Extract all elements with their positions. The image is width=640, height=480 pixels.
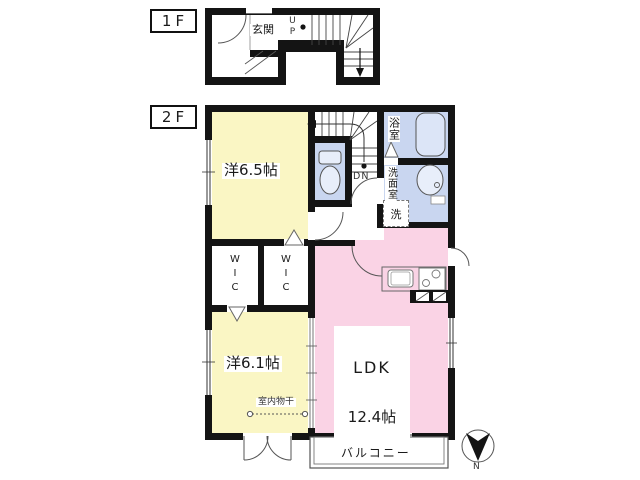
wall-segment xyxy=(345,136,352,207)
wall-segment xyxy=(212,305,308,312)
wall-segment xyxy=(258,246,264,305)
wall-segment xyxy=(398,158,448,165)
north-label: N xyxy=(473,463,480,472)
ldk-name: LDK xyxy=(336,360,408,377)
entrance-label: 玄関 xyxy=(250,24,276,36)
washroom-label: 洗面室 xyxy=(385,166,396,201)
sink-icon xyxy=(417,165,443,195)
floor1-tag: 1F xyxy=(150,9,197,33)
wic-right-label: WIC xyxy=(280,254,291,296)
floor1-tag-label: 1F xyxy=(162,12,188,30)
stairs-end-dot xyxy=(361,163,366,168)
drying-hook-icon xyxy=(302,411,307,416)
balcony-label: バルコニー xyxy=(341,447,411,460)
toilet-tank-icon xyxy=(319,151,341,164)
toilet-bowl-icon xyxy=(320,166,340,194)
wall-segment xyxy=(278,40,286,85)
bath-label: 浴室 xyxy=(388,116,400,142)
wall-segment xyxy=(315,200,345,207)
ldk-door-opening xyxy=(355,240,384,246)
indoor-drying-label: 室内物干 xyxy=(256,398,296,407)
bedroom1-door-opening xyxy=(308,212,315,240)
ldk-size: 12.4帖 xyxy=(336,410,408,426)
laundry-label: 洗 xyxy=(391,206,402,222)
stairs-start-dot xyxy=(300,24,305,29)
bathtub-icon xyxy=(416,113,445,156)
ldk-label: LDK 12.4帖 xyxy=(334,326,410,459)
wall-segment xyxy=(250,50,278,57)
service-door-opening xyxy=(448,248,455,266)
wall-segment xyxy=(315,240,355,246)
wall-segment xyxy=(315,136,345,143)
bedroom1-label: 洋6.5帖 xyxy=(222,163,280,179)
floor-plan-page: 1F 2F 玄関 UP 洋6.5帖 洋6.1帖 LDK 12.4帖 浴室 洗面室… xyxy=(0,0,640,480)
floor2-tag: 2F xyxy=(150,105,197,129)
stove-icon xyxy=(419,268,445,290)
wic-left-label: WIC xyxy=(229,254,240,296)
stairs-down-label: DN xyxy=(353,172,369,182)
laundry-box: 洗 xyxy=(383,200,409,227)
bath-door-opening xyxy=(384,158,398,165)
room-bedroom2 xyxy=(212,312,308,433)
floor2-tag-label: 2F xyxy=(162,108,188,126)
drying-hook-icon xyxy=(247,411,252,416)
stairs-up-label: UP xyxy=(287,16,296,38)
compass-icon xyxy=(462,430,494,462)
counter-icon xyxy=(431,196,445,204)
floor-plan-drawing xyxy=(0,0,640,480)
bedroom2-label: 洋6.1帖 xyxy=(224,356,282,372)
room-ldk xyxy=(384,228,448,246)
entry-opening xyxy=(246,8,272,14)
porch-opening xyxy=(286,52,336,88)
wall-segment xyxy=(336,40,344,85)
